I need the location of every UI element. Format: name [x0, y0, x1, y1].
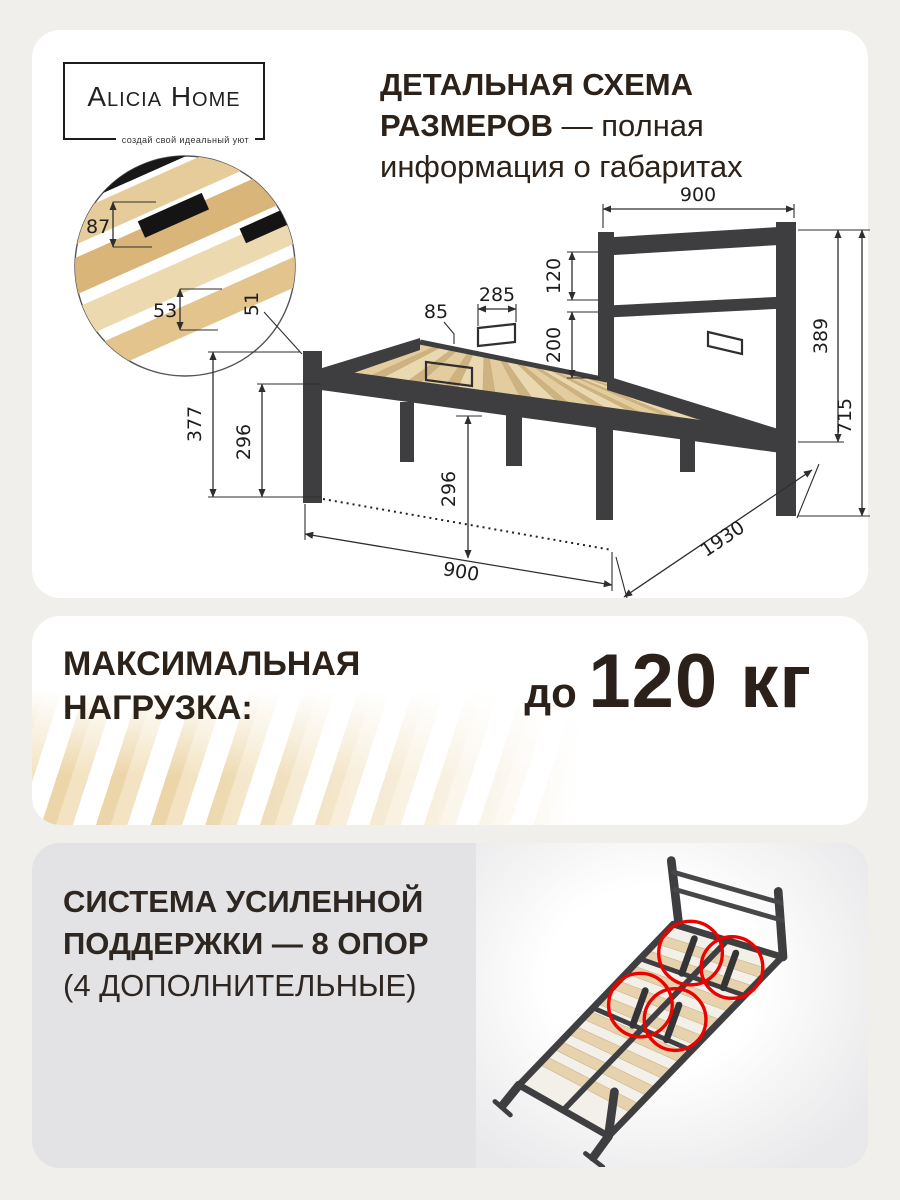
svg-text:296: 296 — [233, 424, 255, 460]
title-rest: — полная — [553, 108, 704, 143]
frame-bottom-render — [476, 843, 868, 1168]
bed-dimensions-drawing: 87 53 900 120 200 — [40, 154, 870, 598]
max-load-heading: МАКСИМАЛЬНАЯ НАГРУЗКА: — [63, 642, 360, 730]
support-system-card: СИСТЕМА УСИЛЕННОЙ ПОДДЕРЖКИ — 8 ОПОР (4 … — [32, 843, 868, 1168]
title-bold-1: ДЕТАЛЬНАЯ СХЕМА — [380, 67, 693, 102]
svg-text:51: 51 — [241, 292, 263, 316]
svg-text:53: 53 — [153, 300, 177, 322]
dim-285: 285 — [478, 284, 516, 326]
brand-tagline: создай свой идеальный уют — [116, 135, 255, 145]
brand-name: Alicia Home — [65, 81, 263, 113]
dim-120: 120 — [543, 252, 598, 300]
title-bold-2: РАЗМЕРОВ — [380, 108, 553, 143]
svg-text:389: 389 — [810, 318, 832, 354]
svg-text:285: 285 — [479, 284, 515, 306]
svg-text:87: 87 — [86, 216, 110, 238]
svg-text:85: 85 — [424, 301, 448, 323]
support-heading: СИСТЕМА УСИЛЕННОЙ ПОДДЕРЖКИ — 8 ОПОР (4 … — [63, 881, 429, 1007]
max-load-card: МАКСИМАЛЬНАЯ НАГРУЗКА: до 120 кг — [32, 616, 868, 825]
svg-text:900: 900 — [680, 184, 716, 206]
load-prefix: до — [524, 669, 588, 716]
dim-top-900: 900 — [603, 184, 794, 228]
frame-bottom-drawing — [492, 849, 864, 1167]
svg-text:200: 200 — [543, 327, 565, 363]
svg-text:1930: 1930 — [696, 516, 748, 561]
svg-text:296: 296 — [438, 471, 460, 507]
load-number: 120 кг — [588, 639, 812, 724]
svg-text:120: 120 — [543, 258, 565, 294]
dim-715: 715 — [798, 230, 870, 516]
brand-logo: Alicia Home создай свой идеальный уют — [63, 62, 265, 140]
dim-85: 85 — [424, 301, 454, 344]
dim-296-center: 296 — [438, 416, 482, 558]
max-load-value: до 120 кг — [524, 638, 812, 725]
svg-text:715: 715 — [834, 398, 856, 434]
dim-bottom-900: 900 — [305, 504, 612, 591]
dimensions-card: Alicia Home создай свой идеальный уют ДЕ… — [32, 30, 868, 598]
headboard — [598, 222, 796, 516]
svg-text:377: 377 — [184, 406, 206, 442]
